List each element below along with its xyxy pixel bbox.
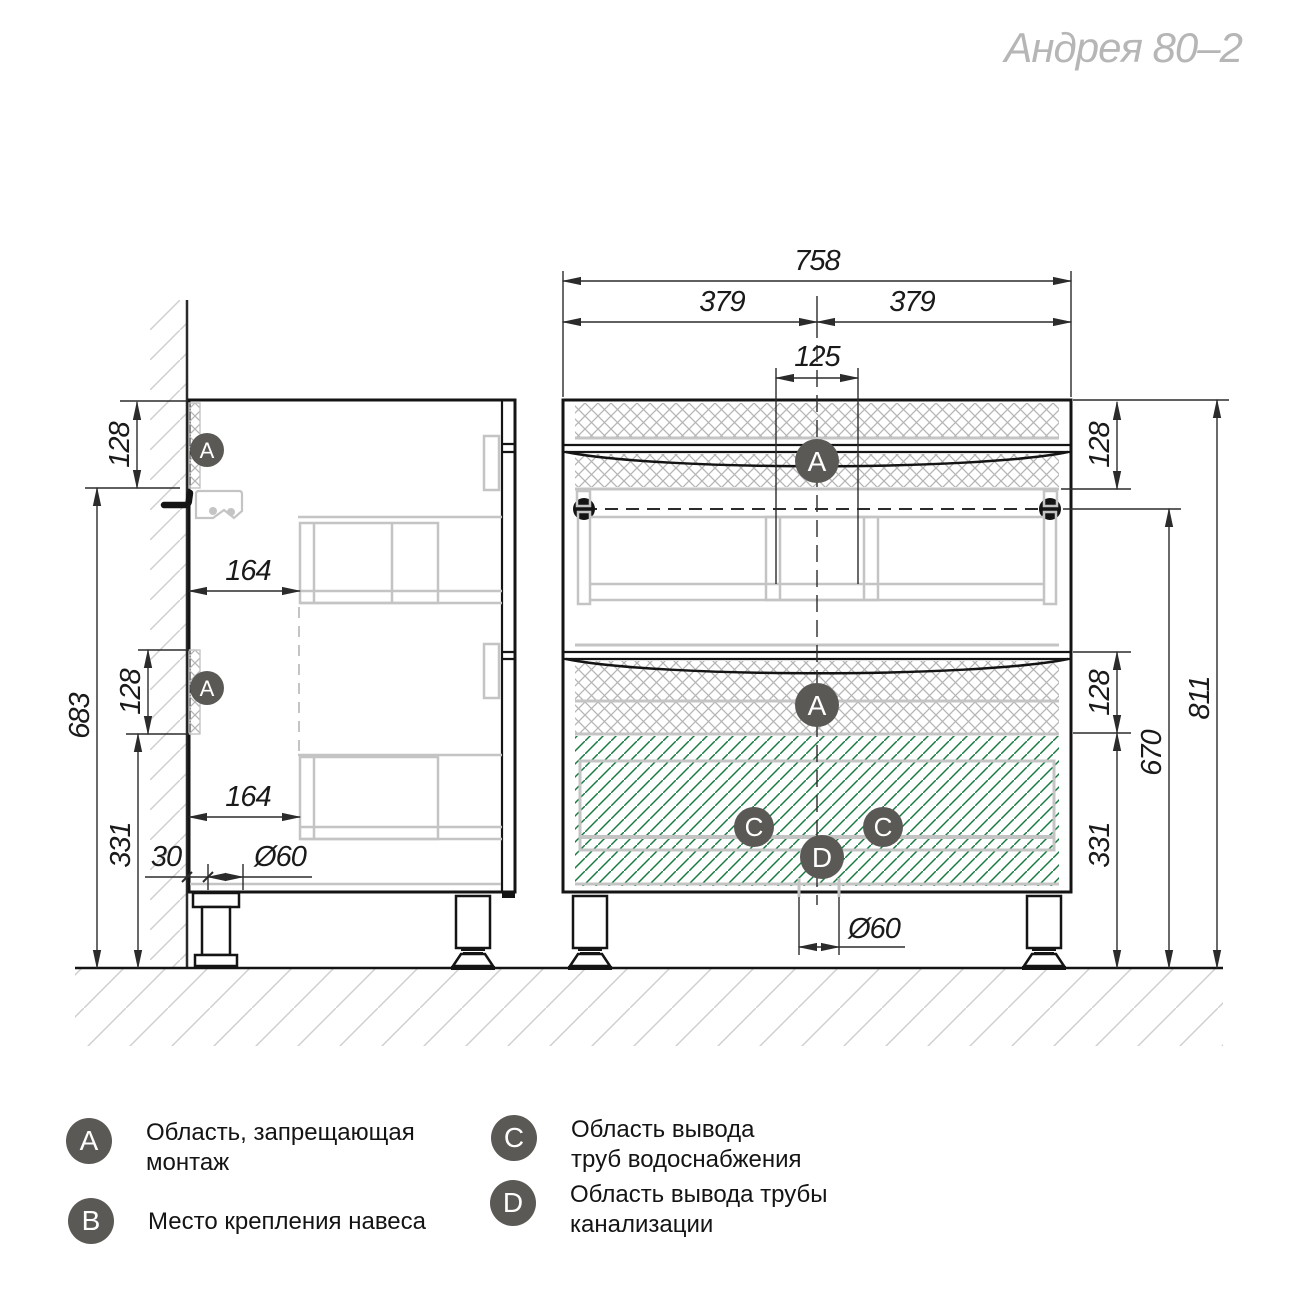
legend-text-d: Область вывода трубы канализации bbox=[570, 1180, 828, 1240]
dim-label: 128 bbox=[115, 668, 147, 714]
zone-badge-label: A bbox=[808, 690, 827, 721]
dim-hanger-to-floor: 670 bbox=[1063, 509, 1181, 968]
front-view: A A C C D bbox=[563, 296, 1071, 970]
side-foot-front bbox=[451, 896, 495, 970]
legend-text-b: Место крепления навеса bbox=[148, 1207, 426, 1237]
legend-text-a: Область, запрещающая монтаж bbox=[146, 1118, 415, 1178]
zone-badge-a-side-lower: A bbox=[190, 671, 224, 705]
technical-drawing: A A bbox=[0, 0, 1300, 1300]
dim-front-top-zone: 128 bbox=[1061, 400, 1229, 489]
zone-badge-label: A bbox=[200, 676, 215, 701]
dim-right-half: 379 bbox=[817, 286, 1071, 322]
dim-drain-front: Ø60 bbox=[799, 913, 905, 947]
legend-text-c: Область вывода труб водоснабжения bbox=[571, 1115, 802, 1175]
dim-label: 164 bbox=[225, 555, 271, 587]
dim-label: 331 bbox=[1084, 822, 1116, 867]
floor-section bbox=[75, 968, 1223, 1046]
zone-badge-d: D bbox=[800, 835, 844, 879]
dim-label: 164 bbox=[225, 781, 271, 813]
dim-front-bottom-zone: 331 bbox=[1084, 733, 1117, 968]
dim-label: 30 bbox=[151, 841, 182, 873]
legend-line: Область, запрещающая bbox=[146, 1118, 415, 1148]
legend-item-b: B Место крепления навеса bbox=[68, 1198, 426, 1244]
legend-badge-c: C bbox=[491, 1115, 537, 1161]
dim-sink-zone: 125 bbox=[776, 341, 858, 378]
side-view: A A bbox=[164, 400, 515, 970]
dim-total-height: 811 bbox=[1184, 400, 1217, 968]
dim-label: 379 bbox=[889, 286, 935, 318]
legend-line: труб водоснабжения bbox=[571, 1145, 802, 1175]
dim-label: 758 bbox=[794, 245, 840, 277]
dim-label: 125 bbox=[794, 341, 841, 373]
legend-badge-b: B bbox=[68, 1198, 114, 1244]
dim-front-mid-zone: 128 bbox=[1073, 652, 1131, 733]
zone-badge-label: C bbox=[874, 812, 893, 842]
legend-badge-a: A bbox=[66, 1118, 112, 1164]
dim-wall-mount-height: 683 bbox=[64, 488, 97, 968]
front-foot-left bbox=[568, 896, 612, 970]
legend-item-a: A Область, запрещающая монтаж bbox=[66, 1118, 415, 1178]
zone-badge-label: A bbox=[808, 446, 827, 477]
dim-label: 128 bbox=[104, 421, 136, 467]
legend-item-d: D Область вывода трубы канализации bbox=[490, 1180, 828, 1240]
legend-line: монтаж bbox=[146, 1148, 415, 1178]
dim-label: 331 bbox=[105, 822, 137, 867]
legend-item-c: C Область вывода труб водоснабжения bbox=[491, 1115, 802, 1175]
dim-label: Ø60 bbox=[253, 841, 307, 873]
side-handle-lower bbox=[484, 644, 499, 698]
zone-badge-c-right: C bbox=[863, 807, 903, 847]
dim-side-bottom-zone: 331 bbox=[105, 734, 138, 968]
zone-badge-c-left: C bbox=[734, 807, 774, 847]
side-handle-upper bbox=[484, 436, 499, 490]
dim-label: 683 bbox=[64, 692, 96, 738]
dim-left-half: 379 bbox=[563, 286, 817, 322]
dim-label: 128 bbox=[1084, 421, 1116, 467]
legend-badge-d: D bbox=[490, 1180, 536, 1226]
side-cabinet-outline bbox=[189, 400, 515, 892]
dim-label: 811 bbox=[1184, 676, 1216, 719]
zone-badge-a-front-lower: A bbox=[795, 683, 839, 727]
zone-badge-label: D bbox=[812, 842, 832, 873]
dim-label: Ø60 bbox=[847, 913, 901, 945]
dim-label: 128 bbox=[1084, 669, 1116, 715]
zone-badge-label: A bbox=[200, 438, 215, 463]
legend-line: Область вывода bbox=[571, 1115, 802, 1145]
zone-badge-label: C bbox=[745, 812, 764, 842]
dim-label: 670 bbox=[1136, 729, 1168, 775]
legend-line: Область вывода трубы bbox=[570, 1180, 828, 1210]
side-front-panel-foot bbox=[502, 892, 515, 898]
front-foot-right bbox=[1022, 896, 1066, 970]
zone-badge-a-front-upper: A bbox=[795, 439, 839, 483]
dim-label: 379 bbox=[699, 286, 745, 318]
legend-line: канализации bbox=[570, 1210, 828, 1240]
side-foot-back bbox=[193, 893, 239, 966]
page-title: Андрея 80–2 bbox=[1004, 24, 1242, 72]
legend-line: Место крепления навеса bbox=[148, 1207, 426, 1237]
floor-hatch bbox=[75, 968, 1223, 1046]
zone-badge-a-side-upper: A bbox=[190, 433, 224, 467]
